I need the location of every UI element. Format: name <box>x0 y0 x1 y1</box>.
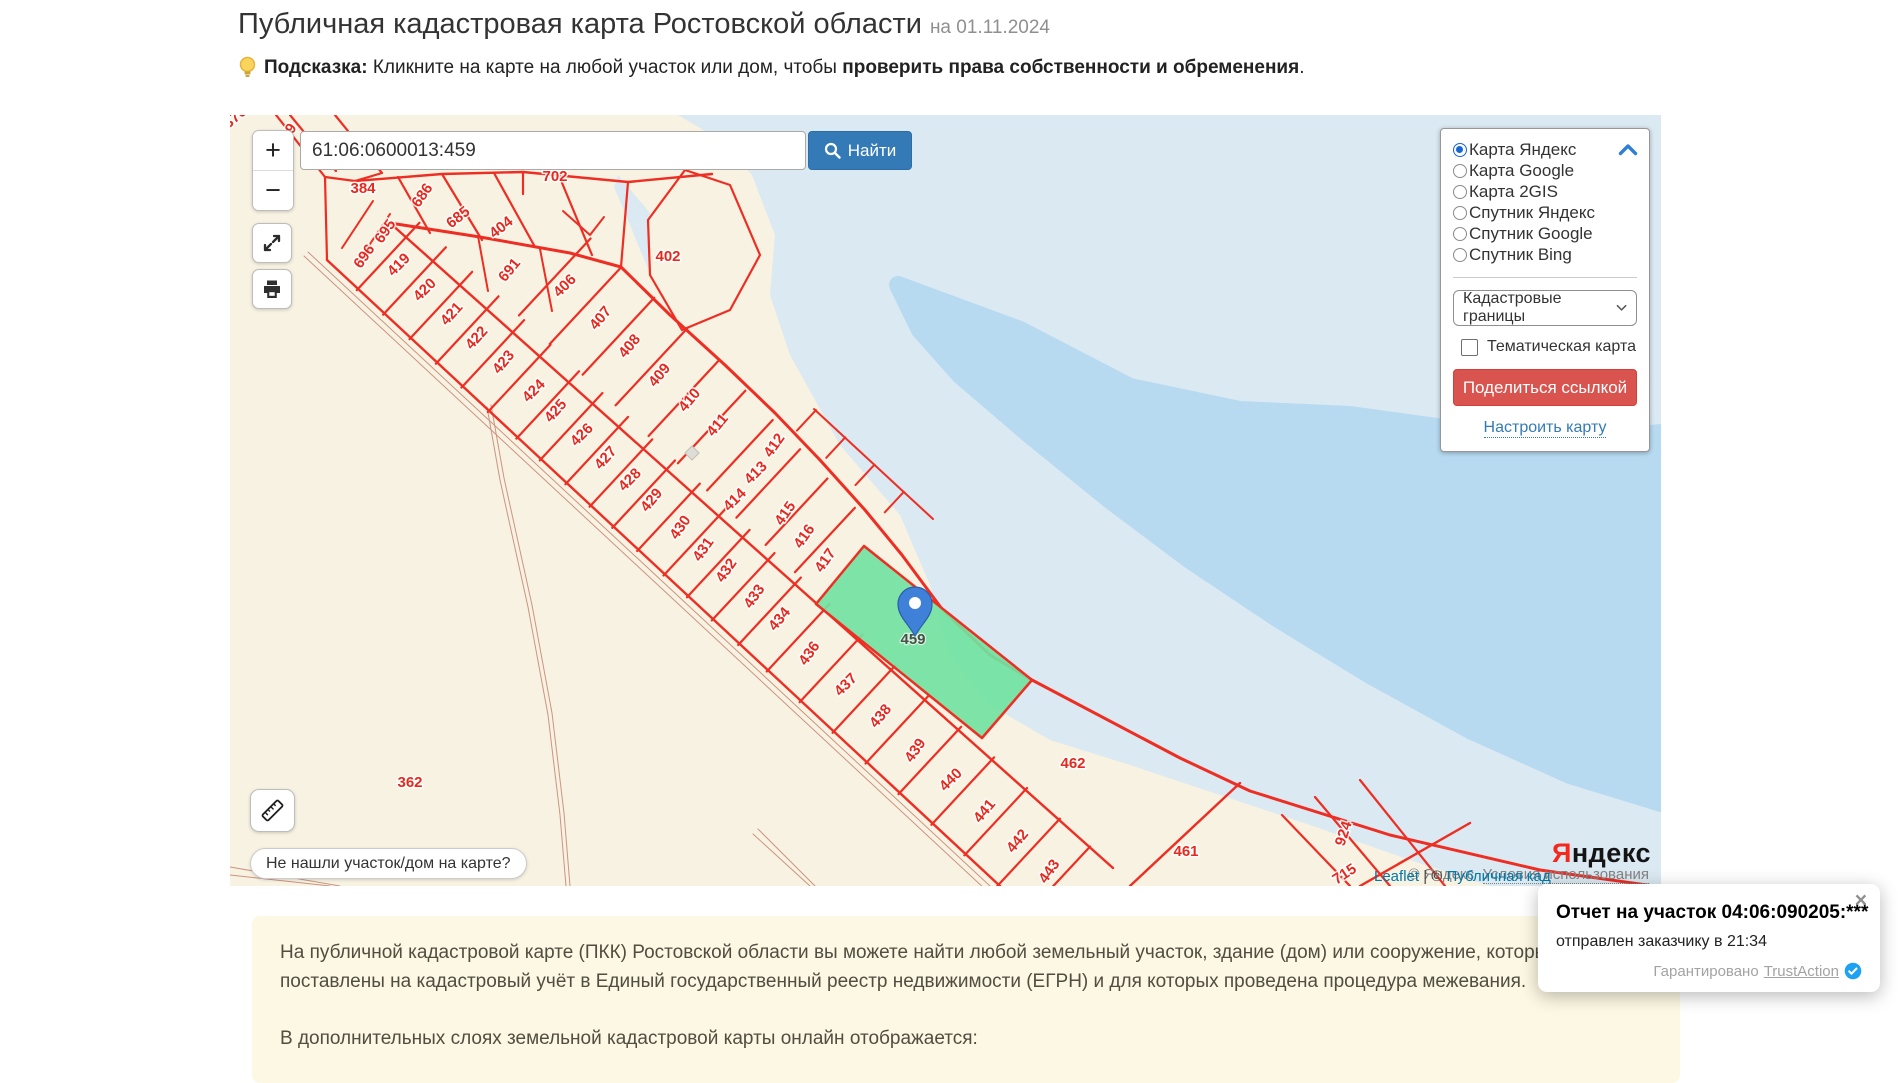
parcel-label: 461 <box>1173 843 1198 860</box>
info-paragraph: На публичной кадастровой карте (ПКК) Рос… <box>280 938 1652 996</box>
print-button[interactable] <box>252 269 292 309</box>
trustaction-link[interactable]: TrustAction <box>1764 963 1839 980</box>
divider <box>1453 277 1637 278</box>
leaflet-link[interactable]: Leaflet <box>1374 868 1419 885</box>
hint-line: Подсказка: Кликните на карте на любой уч… <box>238 56 1304 80</box>
notification-title: Отчет на участок 04:06:090205:*** <box>1556 902 1862 924</box>
zoom-out-button[interactable]: − <box>253 171 293 210</box>
yandex-logo: Яндекс <box>1552 838 1651 869</box>
radio-icon[interactable] <box>1453 164 1467 178</box>
zoom-in-button[interactable]: + <box>253 131 293 170</box>
checkbox[interactable] <box>1461 339 1478 356</box>
notification-body: отправлен заказчику в 21:34 <box>1556 933 1862 951</box>
radio-icon[interactable] <box>1453 227 1467 241</box>
search-button-label: Найти <box>848 141 897 161</box>
map-type-options: Карта ЯндексКарта GoogleКарта 2GISСпутни… <box>1453 139 1637 265</box>
layer-option-label: Спутник Яндекс <box>1469 203 1595 223</box>
layer-option-label: Спутник Google <box>1469 224 1593 244</box>
search-button[interactable]: Найти <box>808 131 912 170</box>
layer-select[interactable]: Кадастровые границы <box>1453 290 1637 326</box>
parcel-label: 384 <box>350 180 376 197</box>
layer-radio-option[interactable]: Спутник Яндекс <box>1453 202 1637 223</box>
parcel-not-found-button[interactable]: Не нашли участок/дом на карте? <box>250 848 527 879</box>
radio-icon[interactable] <box>1453 206 1467 220</box>
parcel-label: 362 <box>397 774 422 791</box>
layers-panel: Карта ЯндексКарта GoogleКарта 2GISСпутни… <box>1440 128 1650 452</box>
layer-option-label: Карта 2GIS <box>1469 182 1558 202</box>
page-title-date: на 01.11.2024 <box>930 17 1050 38</box>
fullscreen-button[interactable] <box>252 223 292 263</box>
report-notification: × Отчет на участок 04:06:090205:*** отпр… <box>1538 884 1880 992</box>
search-icon <box>824 142 841 159</box>
share-link-button[interactable]: Поделиться ссылкой <box>1453 369 1637 406</box>
layer-select-value: Кадастровые границы <box>1463 290 1616 326</box>
radio-icon[interactable] <box>1453 248 1467 262</box>
radio-icon[interactable] <box>1453 185 1467 199</box>
zoom-control: + − <box>252 130 294 211</box>
layer-option-label: Карта Яндекс <box>1469 140 1576 160</box>
page-title-text: Публичная кадастровая карта Ростовской о… <box>238 8 922 40</box>
close-icon[interactable]: × <box>1855 890 1867 911</box>
layer-radio-option[interactable]: Спутник Bing <box>1453 244 1637 265</box>
configure-map-link[interactable]: Настроить карту <box>1453 419 1637 437</box>
printer-icon <box>262 280 282 299</box>
layer-radio-option[interactable]: Карта Яндекс <box>1453 139 1637 160</box>
chevron-up-icon[interactable] <box>1618 143 1638 156</box>
parcel-label: 702 <box>542 168 567 185</box>
layer-option-label: Спутник Bing <box>1469 245 1572 265</box>
search-bar: Найти <box>300 131 912 170</box>
info-box: На публичной кадастровой карте (ПКК) Рос… <box>252 916 1680 1083</box>
layer-option-label: Карта Google <box>1469 161 1574 181</box>
cadastral-map[interactable]: 3765993846866854047026916956964024194204… <box>230 115 1661 886</box>
parcel-label: 402 <box>655 248 680 265</box>
lightbulb-icon <box>238 56 257 80</box>
radio-icon[interactable] <box>1453 143 1467 157</box>
ruler-icon <box>259 797 286 824</box>
page-title: Публичная кадастровая карта Ростовской о… <box>238 8 1050 41</box>
notification-footer: Гарантировано TrustAction <box>1556 962 1862 980</box>
layer-radio-option[interactable]: Карта Google <box>1453 160 1637 181</box>
verified-badge-icon <box>1844 962 1862 980</box>
hint-text: Подсказка: Кликните на карте на любой уч… <box>264 57 1304 79</box>
layer-radio-option[interactable]: Карта 2GIS <box>1453 181 1637 202</box>
fullscreen-icon <box>261 232 283 254</box>
info-paragraph: В дополнительных слоях земельной кадастр… <box>280 1024 1652 1053</box>
pkk-link[interactable]: Публичная кад <box>1447 868 1551 885</box>
measure-button[interactable] <box>250 789 295 832</box>
chevron-down-icon <box>1616 304 1627 312</box>
leaflet-attribution: Leaflet | © Публичная кад <box>1374 868 1551 885</box>
parcel-label: 462 <box>1060 755 1085 772</box>
thematic-map-label: Тематическая карта <box>1487 338 1636 356</box>
thematic-map-checkbox-row[interactable]: Тематическая карта <box>1461 338 1637 356</box>
search-input[interactable] <box>300 131 806 170</box>
layer-radio-option[interactable]: Спутник Google <box>1453 223 1637 244</box>
